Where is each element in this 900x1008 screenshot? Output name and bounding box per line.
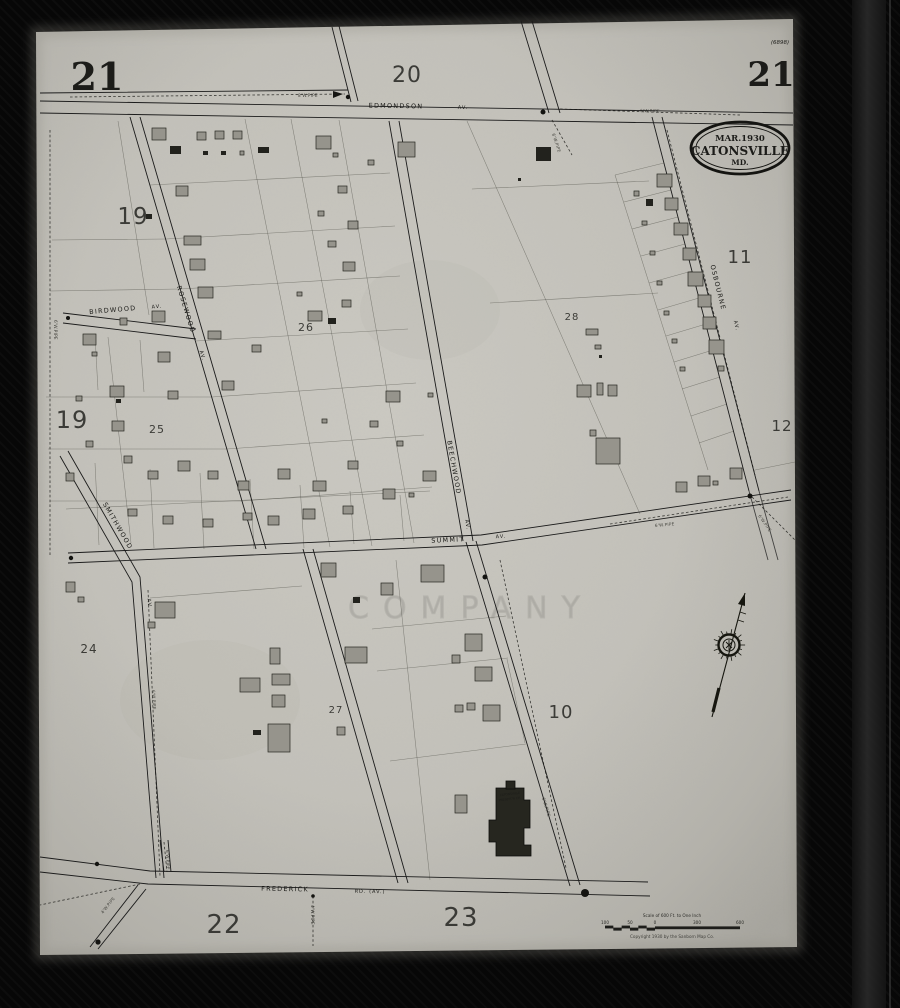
- building-footprint: [208, 331, 221, 339]
- building-footprint: [409, 493, 414, 497]
- building-footprint: [688, 272, 703, 286]
- building-footprint: [698, 476, 710, 486]
- building-footprint: [190, 259, 205, 270]
- edmondson-label: EDMONDSON: [369, 102, 424, 111]
- building-footprint: [676, 482, 687, 492]
- junction-dot: [95, 862, 99, 866]
- building-footprint: [316, 136, 331, 149]
- building-footprint: [110, 386, 124, 397]
- building-footprint: [397, 441, 403, 446]
- pipe-note: 6'W.PIPE: [640, 108, 660, 113]
- building-footprint: [184, 236, 201, 245]
- block-number: 24: [80, 642, 97, 656]
- building-footprint: [475, 667, 492, 681]
- building-footprint: [128, 509, 137, 516]
- scale-segment: [622, 926, 630, 929]
- building-footprint: [452, 655, 460, 663]
- building-footprint: [308, 311, 322, 321]
- building-footprint: [321, 563, 336, 577]
- building-footprint: [483, 705, 500, 721]
- building-footprint: [577, 385, 591, 397]
- building-footprint: [158, 352, 170, 362]
- junction-dot: [581, 889, 589, 897]
- map-sheet-svg: COMPANY CATONSVILLE PRESBYT'N CH. EDMOND…: [0, 0, 900, 1008]
- building-footprint: [278, 469, 290, 479]
- building-footprint: [381, 583, 393, 595]
- sanborn-map-scan: COMPANY CATONSVILLE PRESBYT'N CH. EDMOND…: [0, 0, 900, 1008]
- building-footprint: [428, 393, 433, 397]
- sheet-number-right: 21: [747, 55, 794, 95]
- building-footprint: [170, 146, 181, 154]
- building-footprint: [703, 317, 716, 329]
- building-footprint: [112, 421, 124, 431]
- block-number: 12: [771, 417, 792, 435]
- building-footprint: [168, 391, 178, 399]
- building-footprint: [718, 366, 724, 371]
- building-footprint: [342, 300, 351, 307]
- scale-copyright: Copyright 1930 by the Sanborn Map Co.: [630, 934, 714, 939]
- scan-edge-strip: [852, 0, 886, 1008]
- pipe-note: 6'W.PIPE: [151, 690, 157, 710]
- building-footprint: [233, 131, 242, 139]
- junction-dot: [748, 494, 753, 499]
- building-footprint: [455, 705, 463, 712]
- building-footprint: [86, 441, 93, 447]
- building-footprint: [116, 399, 121, 403]
- building-footprint: [297, 292, 302, 296]
- edmondson-av-label: AV.: [458, 105, 469, 111]
- building-footprint: [657, 281, 662, 285]
- building-footprint: [650, 251, 655, 255]
- building-footprint: [303, 509, 315, 519]
- building-footprint: [370, 421, 378, 427]
- building-footprint: [148, 622, 155, 628]
- building-footprint: [328, 318, 336, 324]
- scale-tick: 0: [654, 920, 657, 925]
- building-footprint: [120, 318, 127, 325]
- block-number: 19: [117, 204, 148, 230]
- junction-dot: [483, 575, 488, 580]
- building-footprint: [343, 262, 355, 271]
- building-footprint: [176, 186, 188, 196]
- block-number: 19: [56, 406, 89, 434]
- summit-label: SUMMIT: [431, 535, 465, 544]
- building-footprint: [92, 352, 97, 356]
- building-footprint: [215, 131, 224, 139]
- building-footprint: [698, 295, 711, 307]
- building-footprint: [253, 730, 261, 735]
- building-footprint: [465, 634, 482, 651]
- block-number: 23: [443, 903, 478, 933]
- building-footprint: [208, 471, 218, 479]
- building-footprint: [386, 391, 400, 402]
- junction-dot: [69, 556, 73, 560]
- building-footprint: [258, 147, 269, 153]
- building-footprint: [333, 153, 338, 157]
- building-footprint: [713, 481, 718, 485]
- adjacent-sheet-top: 20: [392, 63, 422, 88]
- building-footprint: [238, 481, 249, 490]
- building-footprint: [518, 178, 521, 181]
- building-footprint: [124, 456, 132, 463]
- building-footprint: [608, 385, 617, 396]
- building-footprint: [163, 516, 173, 524]
- building-footprint: [348, 221, 358, 229]
- building-footprint: [596, 438, 620, 464]
- building-footprint: [455, 795, 467, 813]
- building-footprint: [599, 355, 602, 358]
- building-footprint: [272, 695, 285, 707]
- junction-dot: [346, 95, 350, 99]
- building-footprint: [586, 329, 598, 335]
- stamp-city: CATONSVILLE: [691, 144, 789, 158]
- building-footprint: [709, 340, 724, 354]
- scale-segment: [647, 928, 655, 931]
- junction-dot: [66, 316, 70, 320]
- scale-tick: 300: [693, 920, 701, 925]
- building-footprint: [672, 339, 677, 343]
- building-footprint: [328, 241, 336, 247]
- building-footprint: [318, 211, 324, 216]
- building-footprint: [646, 199, 653, 206]
- birdwood-av-label: AV.: [151, 304, 162, 311]
- building-footprint: [198, 287, 213, 298]
- building-footprint: [78, 597, 84, 602]
- block-number: 27: [329, 705, 344, 716]
- plate-note: (6898): [771, 40, 789, 46]
- building-footprint: [730, 468, 742, 479]
- building-footprint: [155, 602, 175, 618]
- block-number: 28: [565, 312, 580, 323]
- pipe-note: 6'W.PIPE: [165, 850, 171, 870]
- building-footprint: [595, 345, 601, 349]
- building-footprint: [383, 489, 395, 499]
- building-footprint: [423, 471, 436, 481]
- stamp-date: MAR.1930: [715, 134, 765, 144]
- building-footprint: [252, 345, 261, 352]
- pipe-note: 4'W.PIPE: [310, 905, 315, 925]
- building-footprint: [398, 142, 415, 157]
- scale-tick: 50: [627, 920, 633, 925]
- building-footprint: [421, 565, 444, 582]
- building-footprint: [83, 334, 96, 345]
- building-footprint: [680, 367, 685, 371]
- frederick-label: FREDERICK: [261, 885, 309, 894]
- building-footprint: [322, 419, 327, 423]
- building-footprint: [368, 160, 374, 165]
- pipe-note: 8'W.PIPE: [298, 93, 318, 98]
- building-footprint: [634, 191, 639, 196]
- junction-dot: [95, 939, 100, 944]
- building-footprint: [467, 703, 475, 710]
- embossed-watermark: COMPANY: [348, 591, 594, 626]
- building-footprint: [152, 311, 165, 322]
- building-footprint: [343, 506, 353, 514]
- building-footprint: [345, 647, 367, 663]
- building-footprint: [665, 198, 678, 210]
- building-footprint: [148, 471, 158, 479]
- building-footprint: [197, 132, 206, 140]
- building-footprint: [243, 513, 252, 520]
- building-footprint: [66, 582, 75, 592]
- scale-tick: 100: [601, 920, 609, 925]
- block-number: 10: [549, 702, 574, 723]
- block-number: 11: [728, 247, 753, 268]
- scale-segment: [638, 926, 646, 929]
- building-footprint: [240, 678, 260, 692]
- scan-edge-line: [889, 0, 891, 1008]
- frederick-suffix-label: RD. (AV.): [355, 889, 386, 896]
- building-footprint: [590, 430, 596, 436]
- scale-tick: 600: [736, 920, 744, 925]
- stamp-state: MD.: [731, 158, 748, 167]
- building-footprint: [272, 674, 290, 685]
- building-footprint: [76, 396, 82, 401]
- building-footprint: [313, 481, 326, 491]
- building-footprint: [674, 223, 688, 235]
- pipe-note: 6'W.PIPE: [53, 320, 58, 340]
- scale-segment: [613, 928, 621, 931]
- building-footprint: [268, 516, 279, 525]
- building-footprint: [66, 473, 74, 481]
- building-footprint: [683, 248, 696, 260]
- building-footprint: [203, 151, 208, 155]
- building-footprint: [178, 461, 190, 471]
- sheet-number-left: 21: [71, 54, 124, 99]
- building-footprint: [536, 147, 551, 161]
- junction-dot: [311, 894, 315, 898]
- building-footprint: [222, 381, 234, 390]
- building-footprint: [664, 311, 669, 315]
- smithwood-av-label: AV.: [145, 598, 152, 609]
- scale-segment: [605, 926, 613, 929]
- building-footprint: [152, 128, 166, 140]
- building-footprint: [203, 519, 213, 527]
- building-footprint: [337, 727, 345, 735]
- building-footprint: [268, 724, 290, 752]
- building-footprint: [338, 186, 347, 193]
- building-footprint: [657, 174, 672, 187]
- building-footprint: [348, 461, 358, 469]
- building-footprint: [642, 221, 647, 225]
- block-number: 26: [298, 321, 314, 334]
- building-footprint: [270, 648, 280, 664]
- building-footprint: [221, 151, 226, 155]
- block-number: 22: [206, 910, 241, 940]
- junction-dot: [541, 110, 546, 115]
- scale-segment: [630, 928, 638, 931]
- scale-title: Scale of 600 Ft. to One Inch: [643, 913, 702, 918]
- summit-av-label: AV.: [496, 534, 507, 541]
- building-footprint: [597, 383, 603, 395]
- building-footprint: [353, 597, 360, 603]
- block-number: 25: [149, 423, 165, 436]
- building-footprint: [240, 151, 244, 155]
